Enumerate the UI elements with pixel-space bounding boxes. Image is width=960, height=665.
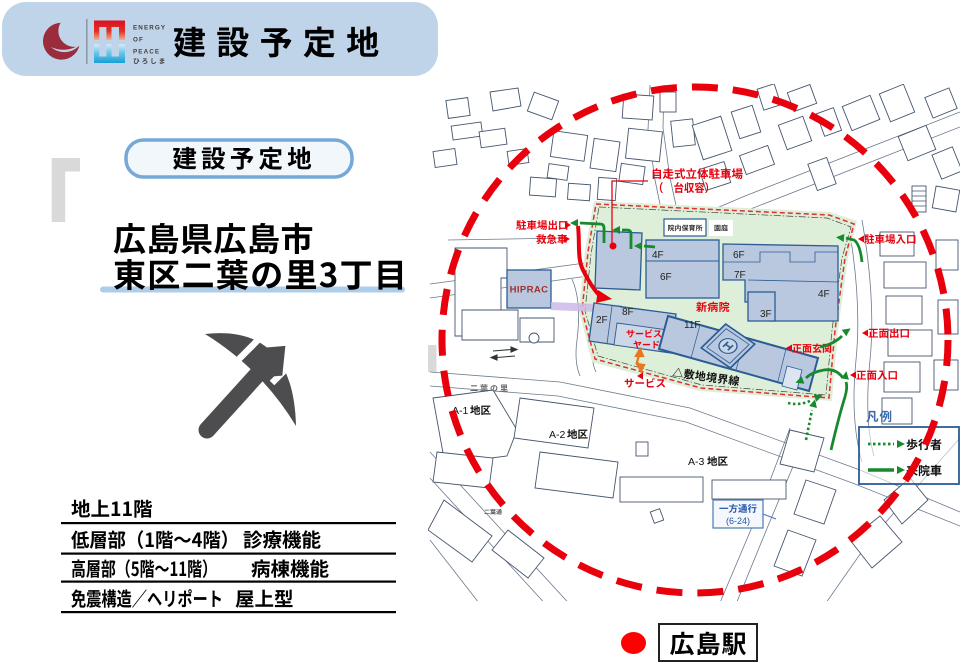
svg-text:7F: 7F bbox=[734, 270, 746, 281]
svg-text:(6-24): (6-24) bbox=[726, 516, 750, 526]
svg-text:11F: 11F bbox=[684, 320, 701, 331]
svg-text:2F: 2F bbox=[596, 315, 608, 326]
svg-text:A-3: A-3 bbox=[688, 456, 705, 468]
svg-text:HIPRAC: HIPRAC bbox=[510, 285, 549, 296]
svg-text:8F: 8F bbox=[622, 307, 634, 318]
svg-text:3F: 3F bbox=[760, 309, 772, 320]
svg-text:6F: 6F bbox=[733, 250, 745, 261]
svg-text:4F: 4F bbox=[652, 250, 664, 261]
svg-text:PEACE: PEACE bbox=[133, 49, 160, 56]
svg-text:A-2: A-2 bbox=[549, 429, 566, 441]
svg-text:ENERGY: ENERGY bbox=[133, 25, 166, 32]
svg-text:6F: 6F bbox=[660, 272, 672, 283]
svg-text:4F: 4F bbox=[818, 289, 830, 300]
svg-text:OF: OF bbox=[133, 37, 144, 44]
